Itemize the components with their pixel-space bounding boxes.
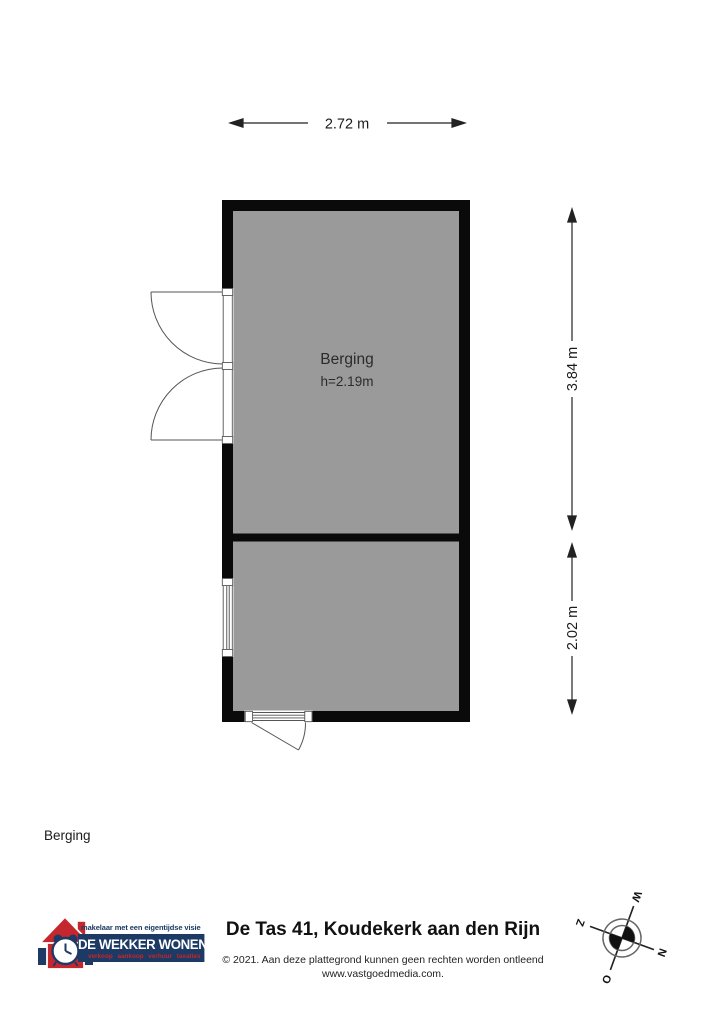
door-jamb — [222, 363, 232, 370]
width-dimension-label: 2.72 m — [325, 117, 369, 133]
door-jamb — [245, 711, 252, 721]
exterior-door — [245, 711, 313, 751]
copyright-text: © 2021. Aan deze plattegrond kunnen geen… — [158, 954, 608, 966]
door-jamb — [222, 437, 232, 444]
compass-needle — [606, 934, 622, 950]
arrow-down-icon — [568, 516, 576, 529]
website-text: www.vastgoedmedia.com. — [158, 968, 608, 980]
arrow-down-icon — [568, 700, 576, 713]
arrow-up-icon — [568, 544, 576, 557]
compass-label-north: N — [654, 947, 668, 959]
door-swing-arc — [151, 368, 223, 440]
arrow-up-icon — [568, 209, 576, 222]
floorplan-page: 2.72 m — [0, 0, 724, 1024]
door-jamb — [305, 711, 312, 721]
arrow-left-icon — [230, 119, 243, 127]
window-jamb — [222, 579, 232, 586]
door-swing-arc — [299, 723, 306, 751]
divider-wall — [233, 534, 460, 542]
room-name-label: Berging — [320, 351, 373, 368]
height-dimension-upper-label: 3.84 m — [565, 347, 581, 391]
height-dimension-lower-label: 2.02 m — [565, 606, 581, 650]
door-swing-arc — [151, 292, 223, 364]
window — [222, 578, 234, 657]
double-door — [151, 288, 234, 444]
door-jamb — [222, 289, 232, 296]
window-jamb — [222, 650, 232, 657]
compass-label-west: W — [628, 889, 643, 903]
address-title: De Tas 41, Koudekerk aan den Rijn — [158, 919, 608, 941]
floorplan-drawing: 2.72 m — [0, 0, 724, 1024]
room-ceiling-height-label: h=2.19m — [321, 374, 374, 389]
outer-wall — [228, 206, 465, 717]
compass-needle — [622, 926, 638, 942]
arrow-right-icon — [452, 119, 465, 127]
floor-name-label: Berging — [44, 828, 91, 843]
